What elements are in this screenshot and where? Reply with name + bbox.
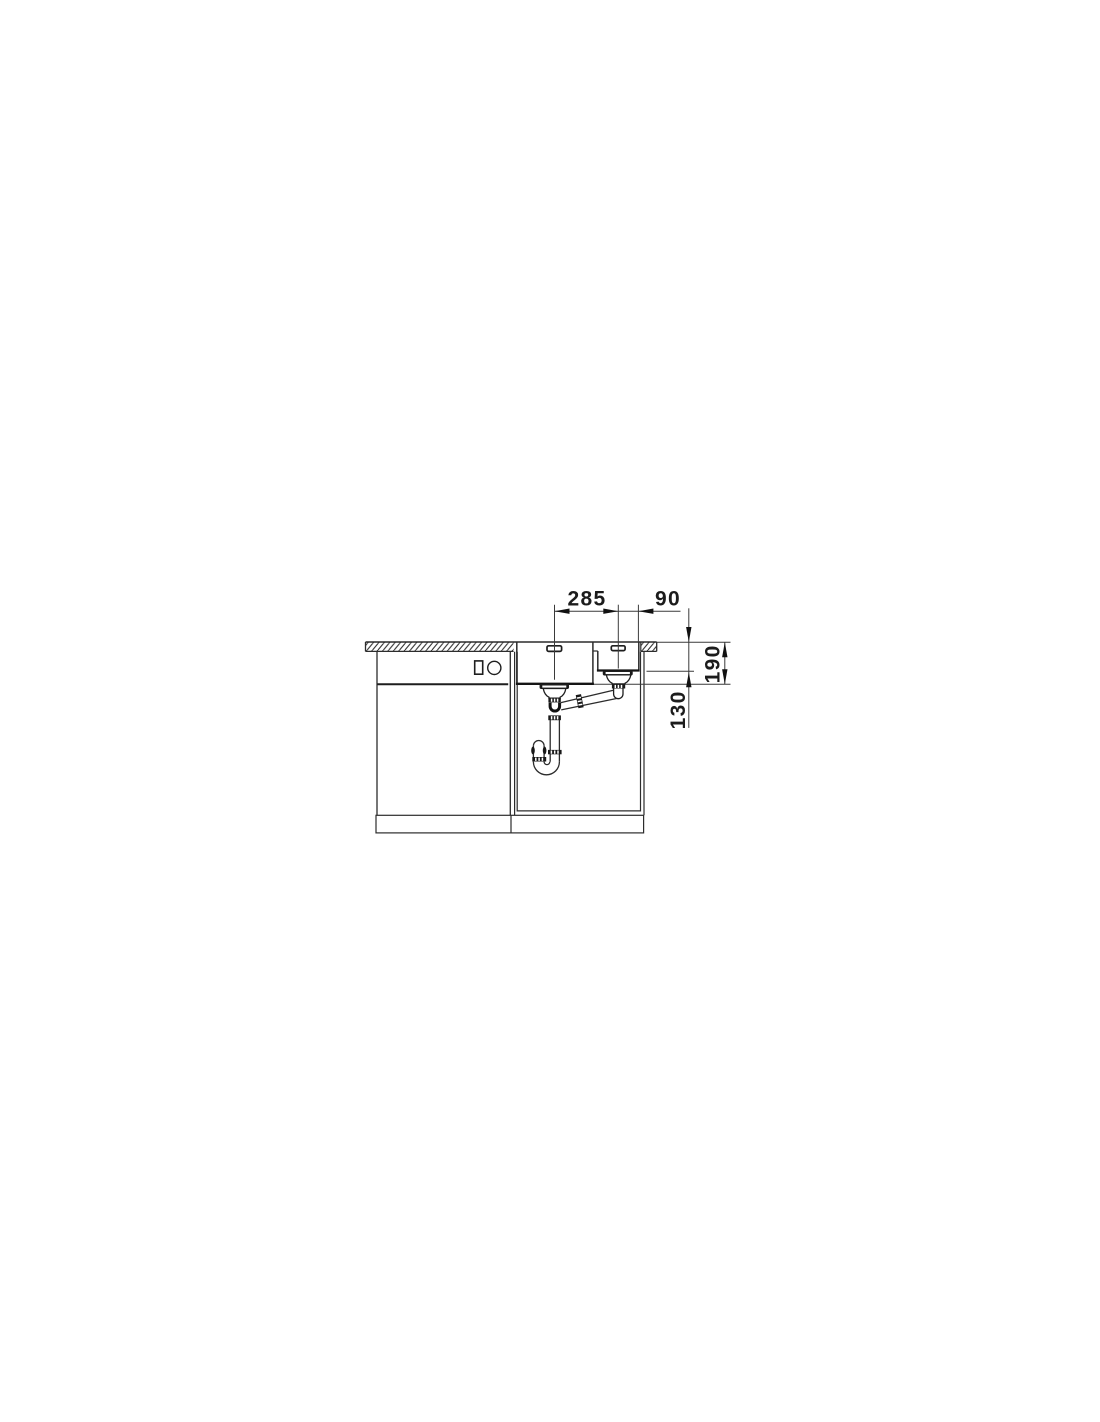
svg-text:190: 190	[702, 644, 725, 683]
svg-text:130: 130	[667, 690, 690, 729]
svg-text:285: 285	[568, 587, 607, 610]
svg-text:90: 90	[655, 587, 681, 610]
